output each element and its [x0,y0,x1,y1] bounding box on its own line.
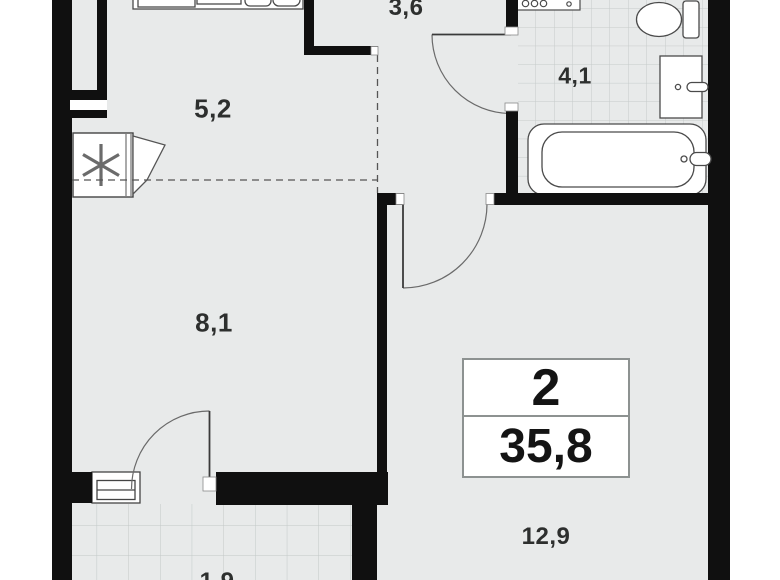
kitchen-counter [133,0,303,9]
wall-shaft [97,0,107,91]
shaft-grille-gap [70,100,107,110]
toilet [637,1,700,38]
label-hall-area: 3,6 [389,0,424,22]
kitchen-sink [138,0,195,7]
floor-plan: 5,2 3,6 4,1 8,1 12,9 1,9 2 35,8 [0,0,780,580]
label-kitchen-zone-area: 5,2 [194,94,232,125]
wall-balcony-right [352,503,377,580]
label-living-room-area: 12,9 [522,523,571,551]
wall-room-living-divider [377,193,387,505]
label-room-zone-area: 8,1 [195,308,233,339]
basin-faucet [687,83,708,92]
wall-right-exterior [708,0,730,580]
wall-bathroom-left [506,0,518,30]
bathtub-faucet [690,153,711,166]
rooms-count-value: 2 [464,360,628,417]
apartment-info-box: 2 35,8 [462,358,630,478]
wall-balcony-top [216,472,388,505]
label-balcony-area: 1,9 [200,568,235,580]
total-area-value: 35,8 [464,417,628,476]
floor-plan-drawing [0,0,780,580]
wall-left-exterior [52,0,72,580]
washing-machine [517,0,580,10]
wall-kitchen-hall [304,0,314,48]
wall-living-top [494,193,730,205]
cooktop-pan [245,0,271,6]
bathtub [528,124,706,195]
label-bathroom-area: 4,1 [558,63,591,90]
